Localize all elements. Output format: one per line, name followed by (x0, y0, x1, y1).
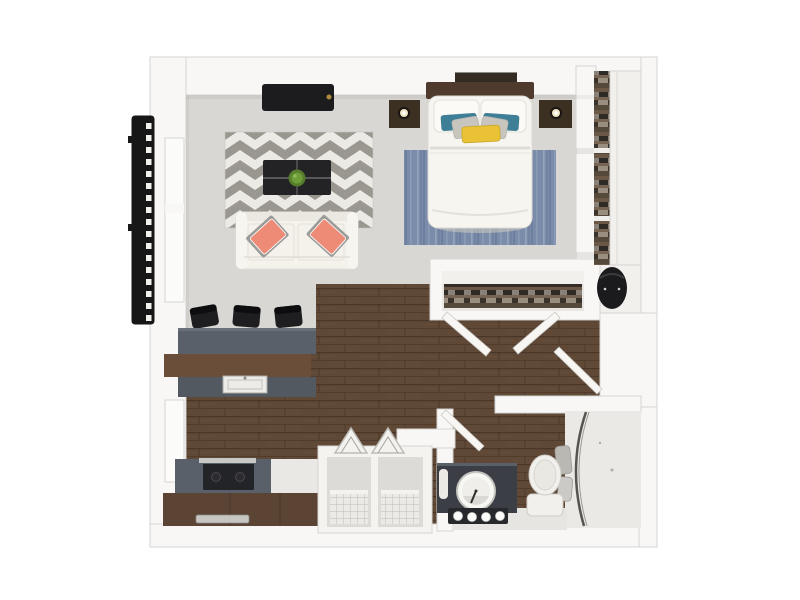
burner (212, 473, 221, 482)
oven-handle (196, 515, 249, 523)
wall-right-middle (600, 313, 657, 409)
wall-right-lower (639, 407, 657, 547)
kitchen-counter-run (163, 458, 318, 526)
window-living (165, 138, 184, 302)
towel-roll (439, 469, 448, 499)
closet-panel (610, 71, 641, 265)
vanity-bulb (482, 513, 491, 522)
island-bar-top (178, 328, 316, 354)
kitchen-island (164, 328, 316, 397)
faucet (244, 377, 247, 380)
vanity-bulb (468, 513, 477, 522)
stove (203, 464, 254, 490)
wall-right-upper (641, 57, 657, 319)
floor-plan-canvas (0, 0, 800, 600)
closet-rod (444, 284, 582, 287)
coffee-table (263, 160, 331, 195)
vanity-bulb (496, 512, 505, 521)
exterior-ladder (128, 117, 153, 323)
island-wood-counter (164, 354, 311, 377)
window-divider (165, 204, 184, 213)
yellow-throw-pillow (462, 125, 501, 143)
wall-stub-bottom (397, 429, 455, 448)
vanity-bulb (454, 512, 463, 521)
hanging-clothes (594, 71, 610, 265)
floor-plan-image (0, 0, 800, 600)
bar-stools (189, 304, 303, 329)
tv-console (262, 84, 334, 111)
burner (236, 473, 245, 482)
toilet (527, 455, 563, 516)
coat-closet-interior (442, 271, 584, 311)
wire-basket (381, 490, 419, 524)
coat-closet-clothes (444, 284, 582, 308)
counter-light (271, 459, 318, 493)
wall-bathroom-top (495, 396, 641, 413)
console-knob (327, 95, 332, 100)
nightstand-right (539, 100, 572, 128)
wire-basket (330, 490, 368, 524)
vanity (437, 463, 517, 524)
round-chair (597, 267, 627, 309)
sofa (236, 212, 358, 269)
stove-trim (199, 458, 256, 463)
nightstand-left (389, 100, 420, 128)
